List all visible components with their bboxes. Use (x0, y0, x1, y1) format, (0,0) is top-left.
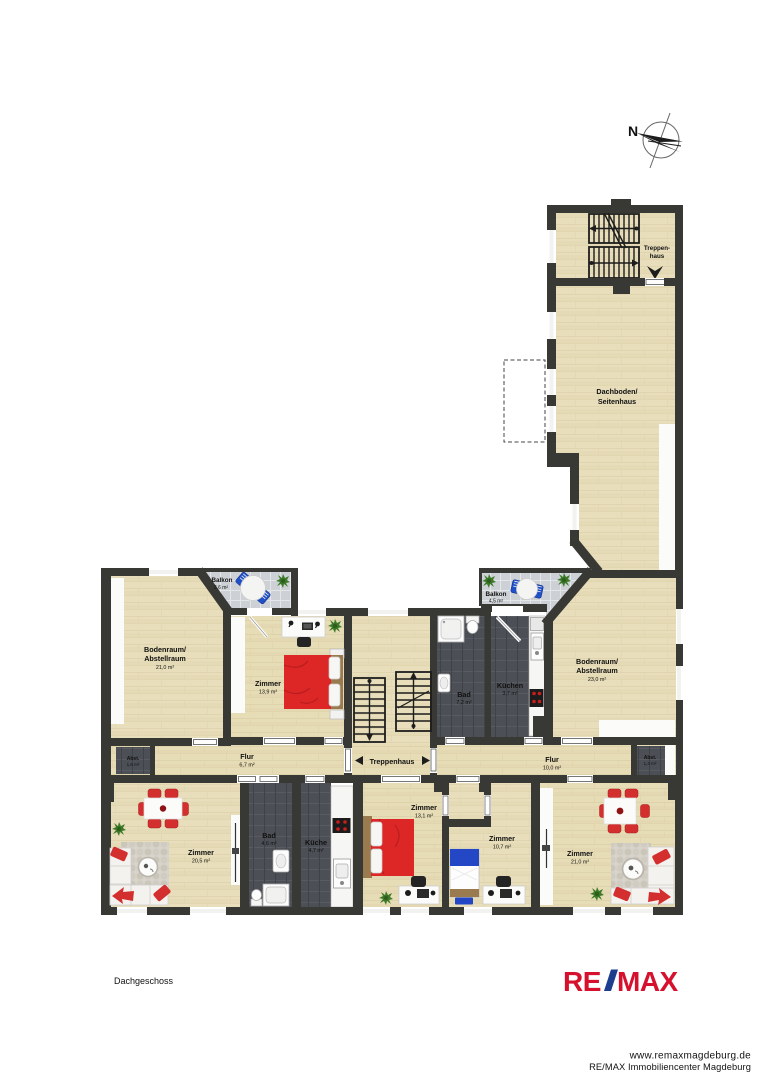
svg-text:Dachgeschoss: Dachgeschoss (114, 976, 174, 986)
svg-text:10,0 m²: 10,0 m² (543, 766, 561, 772)
svg-text:23,0 m²: 23,0 m² (588, 677, 606, 683)
svg-text:Dachboden/: Dachboden/ (596, 387, 637, 396)
svg-text:6,7 m²: 6,7 m² (239, 763, 254, 769)
svg-text:20,5 m²: 20,5 m² (192, 859, 210, 865)
svg-text:Bodenraum/: Bodenraum/ (144, 645, 186, 654)
svg-text:Küche: Küche (305, 838, 327, 847)
svg-text:Flur: Flur (240, 752, 254, 761)
svg-text:Abstellraum: Abstellraum (144, 654, 186, 663)
svg-text:1,6 m²: 1,6 m² (127, 762, 140, 767)
svg-text:Bodenraum/: Bodenraum/ (576, 657, 618, 666)
svg-text:Zimmer: Zimmer (489, 834, 515, 843)
svg-text:www.remaxmagdeburg.de: www.remaxmagdeburg.de (629, 1051, 752, 1062)
svg-text:N: N (628, 123, 638, 139)
svg-text:4,6 m²: 4,6 m² (261, 841, 276, 847)
svg-text:Bad: Bad (262, 831, 276, 840)
svg-text:Balkon: Balkon (486, 591, 507, 598)
svg-text:4,7 m²: 4,7 m² (308, 848, 323, 854)
svg-text:10,7 m²: 10,7 m² (493, 845, 511, 851)
svg-text:Seitenhaus: Seitenhaus (598, 397, 636, 406)
svg-text:13,9 m²: 13,9 m² (259, 690, 277, 696)
svg-text:21,0 m²: 21,0 m² (571, 860, 589, 866)
svg-text:Zimmer: Zimmer (411, 803, 437, 812)
svg-text:Küchen: Küchen (497, 681, 523, 690)
svg-text:Balkon: Balkon (212, 577, 233, 584)
svg-text:1,4 m²: 1,4 m² (644, 761, 657, 766)
svg-text:13,1 m²: 13,1 m² (415, 814, 433, 820)
svg-text:Flur: Flur (545, 755, 559, 764)
svg-text:Bad: Bad (457, 690, 471, 699)
svg-text:haus: haus (650, 253, 665, 260)
svg-text:7,2 m²: 7,2 m² (456, 700, 471, 706)
svg-text:RE/MAX Immobiliencenter Magdeb: RE/MAX Immobiliencenter Magdeburg (589, 1062, 751, 1072)
svg-text:Zimmer: Zimmer (255, 679, 281, 688)
svg-text:Zimmer: Zimmer (188, 848, 214, 857)
svg-text:MAX: MAX (617, 966, 679, 997)
svg-text:3,7 m²: 3,7 m² (502, 691, 517, 697)
svg-text:Abstellraum: Abstellraum (576, 666, 618, 675)
svg-text:RE: RE (563, 966, 601, 997)
svg-text:3,6 m²: 3,6 m² (214, 585, 229, 591)
svg-text:4,5 m²: 4,5 m² (489, 599, 504, 605)
svg-text:Treppenhaus: Treppenhaus (370, 757, 415, 766)
svg-text:21,0 m²: 21,0 m² (156, 665, 174, 671)
svg-text:Treppen-: Treppen- (644, 245, 670, 252)
svg-text:Zimmer: Zimmer (567, 849, 593, 858)
